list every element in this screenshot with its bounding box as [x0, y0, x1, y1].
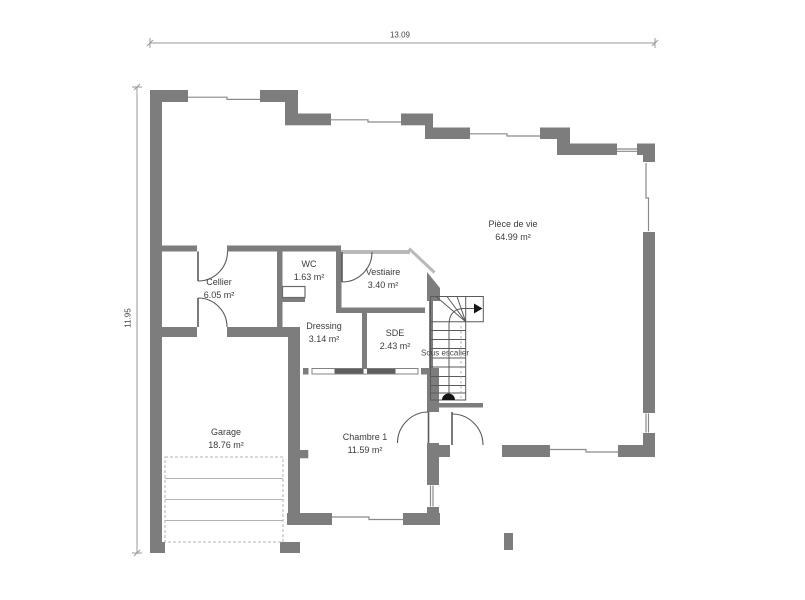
room-area: 2.43 m²: [380, 340, 411, 353]
room-area: 3.14 m²: [306, 333, 342, 346]
stair-start-marker: [442, 394, 455, 401]
dimension-top: [147, 38, 658, 48]
room-label-chambre-1: Chambre 1 11.59 m²: [343, 431, 388, 457]
window-chambre-south: [332, 513, 403, 525]
room-name: WC: [301, 259, 316, 269]
dimension-left: [132, 84, 142, 556]
window-top-2: [331, 114, 401, 126]
window-right-large: [643, 162, 655, 232]
room-area: 18.76 m²: [208, 439, 244, 452]
room-name: SDE: [386, 328, 405, 338]
room-label-cellier: Cellier 6.05 m²: [204, 276, 235, 302]
room-name: Vestiaire: [366, 267, 401, 277]
door-exterior-stair: [452, 412, 483, 445]
dimension-width-label: 13.09: [388, 31, 412, 40]
room-name: Chambre 1: [343, 432, 388, 442]
exterior-walls: [150, 90, 655, 553]
window-right-small: [643, 413, 655, 433]
room-area: 6.05 m²: [204, 289, 235, 302]
room-name: Dressing: [306, 321, 342, 331]
room-area: 11.59 m²: [343, 444, 388, 457]
room-area: 3.40 m²: [366, 279, 401, 292]
room-name: Pièce de vie: [488, 219, 537, 229]
room-area: 64.99 m²: [488, 231, 537, 244]
sliding-doors-dressing-sde: [312, 369, 418, 375]
window-top-4: [617, 144, 637, 156]
room-label-piece-de-vie: Pièce de vie 64.99 m²: [488, 218, 537, 244]
garage-door: [165, 457, 283, 542]
door-cellier-garage: [198, 298, 227, 327]
room-area: 1.63 m²: [294, 271, 325, 284]
door-chambre-1: [398, 412, 429, 443]
stair-direction-arrow: [474, 304, 483, 314]
dimension-height-label: 11.95: [124, 306, 133, 329]
under-stairs-label: Sous escalier: [421, 349, 469, 358]
room-label-dressing: Dressing 3.14 m²: [306, 320, 342, 346]
room-name: Garage: [211, 427, 241, 437]
window-top-1: [188, 90, 260, 102]
chamfer-wall: [409, 249, 435, 273]
wc-duct-box: [283, 287, 306, 298]
room-label-sde: SDE 2.43 m²: [380, 327, 411, 353]
room-label-garage: Garage 18.76 m²: [208, 426, 244, 452]
room-label-vestiaire: Vestiaire 3.40 m²: [366, 266, 401, 292]
room-label-wc: WC 1.63 m²: [294, 258, 325, 284]
room-name: Cellier: [206, 277, 232, 287]
window-chambre-east: [427, 485, 439, 507]
window-top-3: [470, 128, 540, 140]
floor-plan-drawing: [0, 0, 805, 600]
window-bottom-living: [550, 445, 618, 457]
floor-plan: 13.09 11.95 Pièce de vie 64.99 m² Cellie…: [0, 0, 805, 600]
exterior-post: [504, 533, 513, 550]
